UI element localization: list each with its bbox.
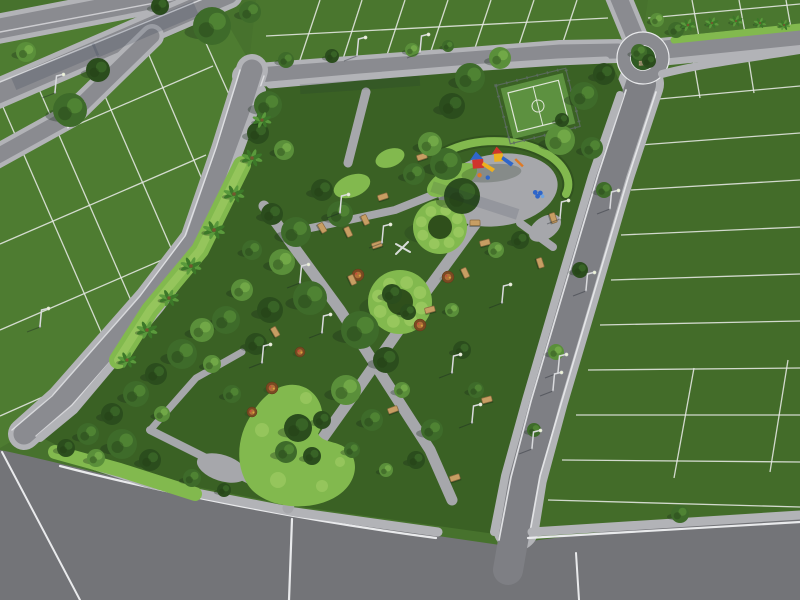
- aerial-park-render: [0, 0, 800, 600]
- play-tower1: [472, 159, 484, 169]
- play-tower2: [494, 153, 504, 162]
- scene-render: [0, 0, 800, 600]
